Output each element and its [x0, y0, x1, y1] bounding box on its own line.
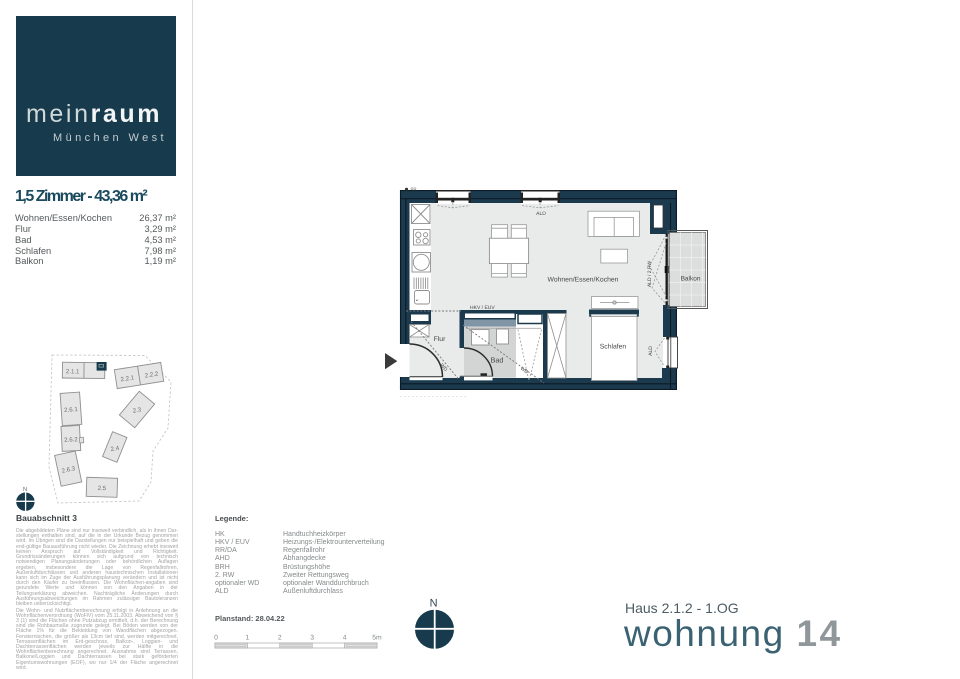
- svg-text:2.6.1: 2.6.1: [64, 406, 79, 414]
- svg-text:Bad: Bad: [491, 356, 504, 365]
- svg-text:ALD: ALD: [648, 346, 654, 356]
- svg-text:Schlafen: Schlafen: [600, 344, 627, 351]
- svg-text:2.6.2: 2.6.2: [64, 436, 79, 444]
- svg-text:HKV / EUV: HKV / EUV: [470, 305, 495, 311]
- svg-text:Flur: Flur: [434, 336, 446, 343]
- svg-text:3: 3: [310, 635, 314, 642]
- svg-text:N: N: [23, 486, 27, 493]
- svg-text:ALD: ALD: [536, 211, 546, 217]
- svg-text:ALD / 2.RW: ALD / 2.RW: [647, 261, 653, 288]
- svg-text:4: 4: [343, 635, 347, 642]
- svg-text:2: 2: [278, 635, 282, 642]
- svg-text:2.1.2: 2.1.2: [88, 370, 101, 377]
- svg-text:5m: 5m: [372, 635, 382, 642]
- svg-text:2.1.1: 2.1.1: [66, 368, 80, 375]
- svg-text:0: 0: [214, 635, 218, 642]
- svg-text:N: N: [430, 598, 438, 610]
- svg-text:RR: RR: [411, 187, 417, 192]
- svg-text:2.5: 2.5: [97, 485, 106, 492]
- svg-text:Balkon: Balkon: [681, 276, 701, 283]
- svg-text:1: 1: [246, 635, 250, 642]
- svg-text:2.4: 2.4: [110, 445, 120, 453]
- svg-text:Wohnen/Essen/Kochen: Wohnen/Essen/Kochen: [548, 277, 619, 284]
